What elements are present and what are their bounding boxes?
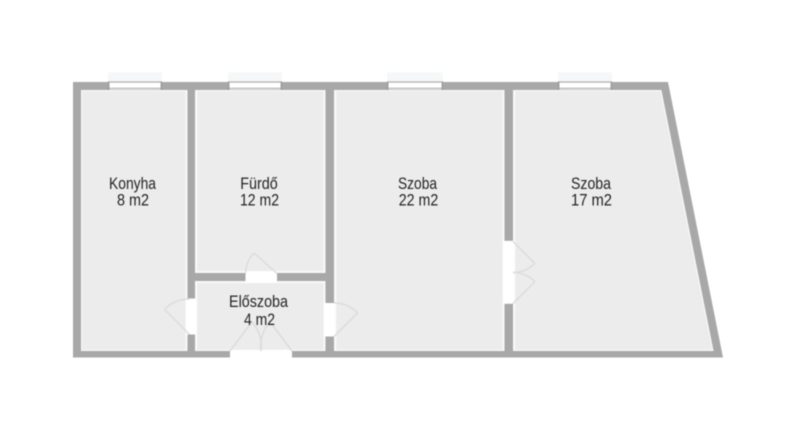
svg-text:12 m2: 12 m2 (240, 191, 279, 210)
svg-text:17 m2: 17 m2 (571, 191, 612, 210)
svg-text:22 m2: 22 m2 (399, 191, 439, 210)
svg-text:Előszoba: Előszoba (229, 292, 288, 311)
svg-text:4 m2: 4 m2 (244, 310, 275, 329)
svg-text:8 m2: 8 m2 (117, 191, 149, 210)
